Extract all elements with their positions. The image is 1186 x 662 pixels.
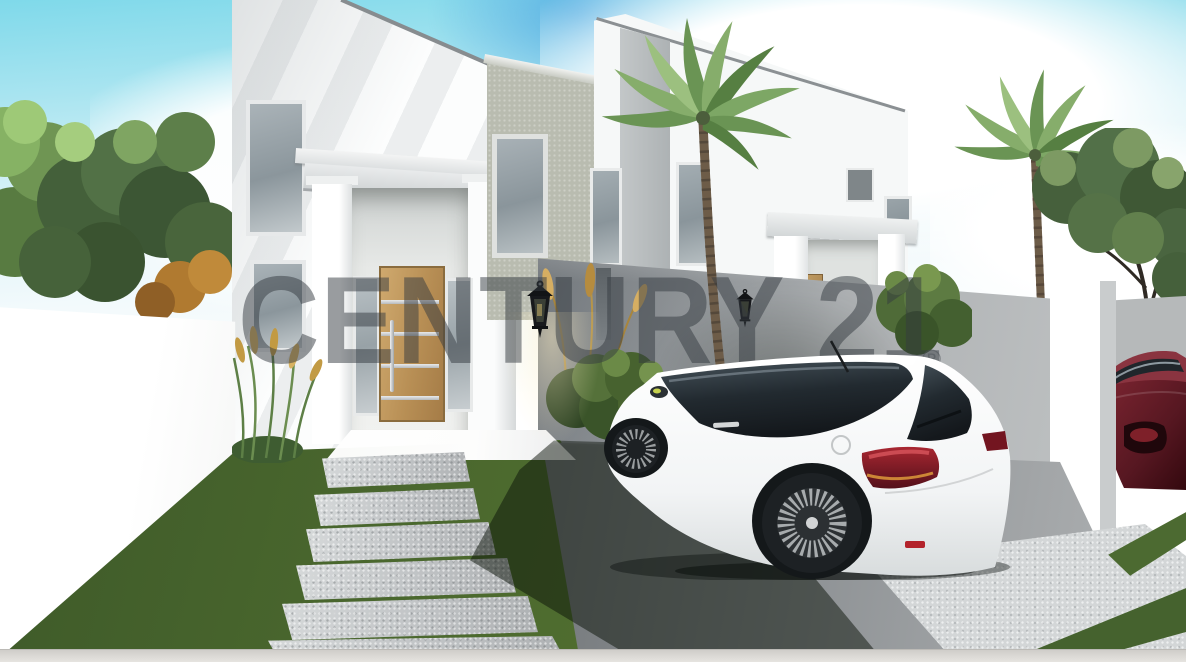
white-car	[595, 335, 1020, 580]
wing-window	[492, 134, 548, 258]
property-render-photo: CENTURY 21 ®	[0, 0, 1186, 662]
house-2-window-small	[846, 168, 874, 202]
door-steel-strip	[381, 396, 439, 400]
left-trees	[0, 82, 255, 337]
house-1-window-upper	[246, 100, 306, 236]
sidewalk-strip	[0, 649, 1186, 662]
